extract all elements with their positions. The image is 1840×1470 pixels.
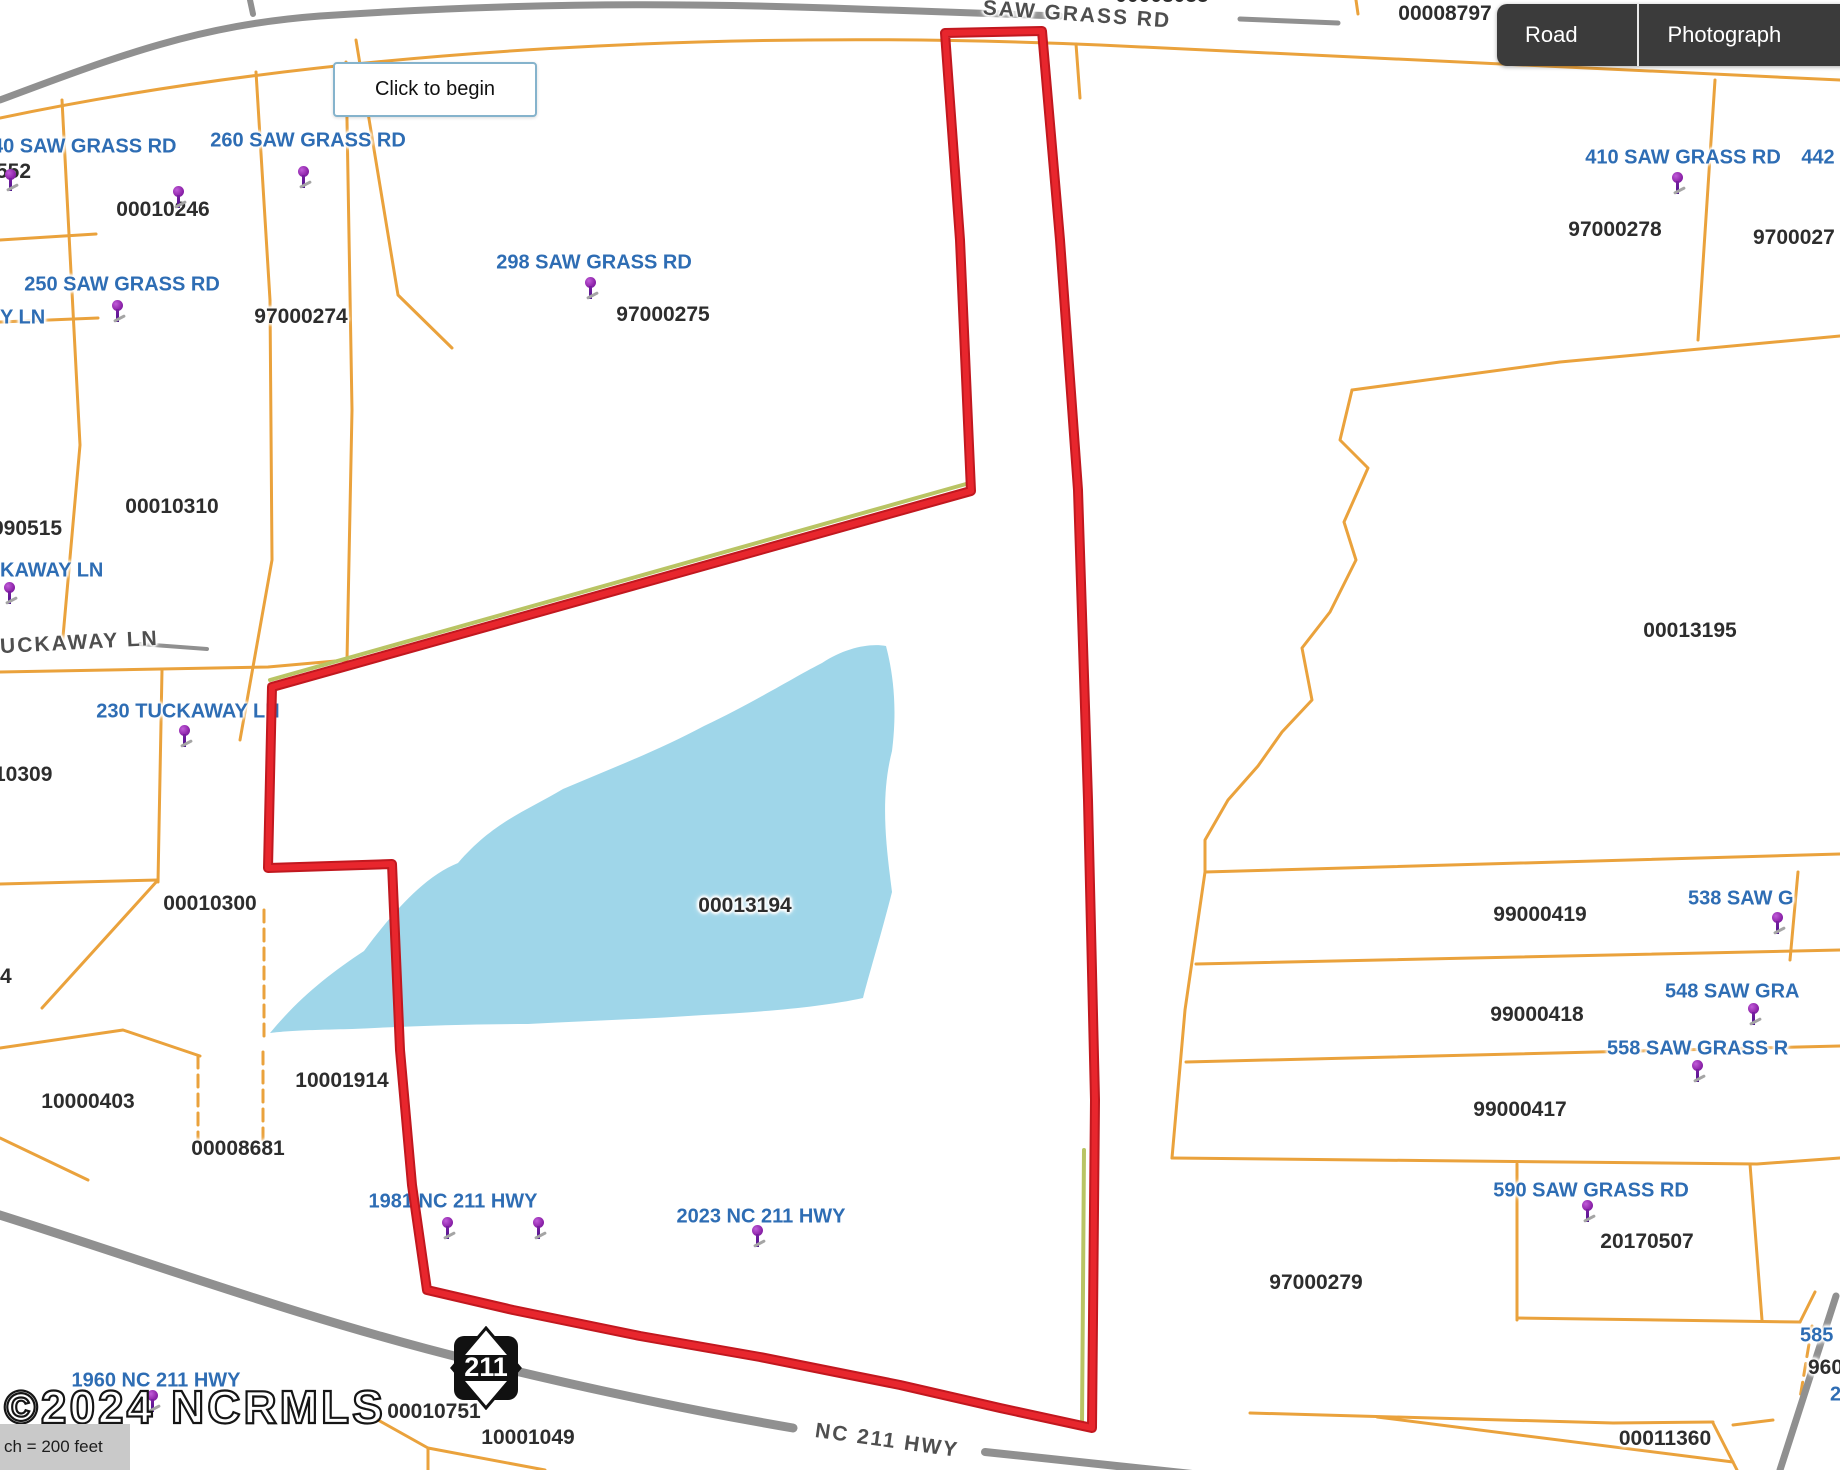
scale-bar: ch = 200 feet <box>0 1424 130 1470</box>
photograph-button[interactable]: Photograph <box>1639 4 1840 66</box>
click-to-begin-tooltip: Click to begin <box>333 62 537 117</box>
map-type-toggle: Road Map Photograph <box>1497 4 1840 66</box>
route-number: 211 <box>464 1352 508 1382</box>
road-map-button[interactable]: Road Map <box>1497 4 1639 66</box>
map-viewer[interactable]: 0000879700008055000102465529700027497000… <box>0 0 1840 1470</box>
ui-overlays: Road Map Photograph Click to begin 211 ©… <box>0 0 1840 1470</box>
